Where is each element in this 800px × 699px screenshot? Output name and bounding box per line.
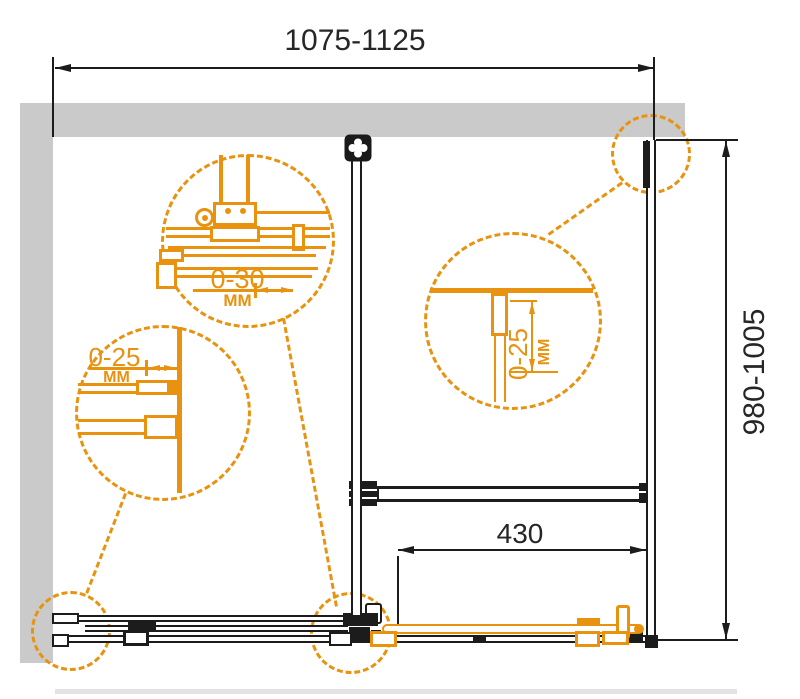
door-carriage-left bbox=[370, 631, 397, 647]
det1-carriage-top bbox=[213, 202, 257, 226]
center-post-mount-cap bbox=[344, 134, 372, 162]
right-post-wall-profile bbox=[643, 141, 650, 188]
right-post bbox=[646, 140, 656, 646]
dim-top-arrow-left bbox=[55, 64, 71, 72]
rail2-block bbox=[128, 621, 156, 630]
dim-right-line bbox=[725, 141, 727, 639]
det1-glass-edge-left bbox=[219, 155, 223, 207]
dim-right-arrow-down bbox=[722, 623, 730, 639]
det1-roller-axle bbox=[202, 215, 208, 221]
rail1-wall-bracket bbox=[52, 613, 79, 624]
det2-bar1-line2 bbox=[78, 391, 140, 394]
door-top-tab bbox=[577, 618, 600, 626]
door-carriage-right bbox=[602, 631, 629, 645]
det1-glass-edge-right bbox=[246, 155, 250, 207]
det2-wall-profile-bar bbox=[177, 327, 182, 493]
dim-right-arrow-up bbox=[722, 141, 730, 157]
det2-bar2-block bbox=[144, 415, 178, 439]
callout-connector-left bbox=[85, 493, 127, 594]
det1-dim-arrow-right bbox=[281, 287, 293, 293]
det2-bar1-insert bbox=[167, 382, 177, 393]
det1-unit-label: MM bbox=[205, 291, 270, 311]
center-post bbox=[351, 158, 362, 615]
dim-430-ext-left bbox=[397, 556, 399, 626]
dim-top-ext-left bbox=[52, 57, 54, 137]
det1-rail-a bbox=[253, 211, 330, 214]
right-post-foot bbox=[645, 635, 658, 648]
dim-430-label: 430 bbox=[460, 518, 580, 550]
door-carriage-mid bbox=[575, 631, 600, 647]
det2-bar2-line1 bbox=[78, 419, 148, 422]
det1-carriage-bottom bbox=[210, 226, 260, 242]
rail3-clip bbox=[473, 635, 486, 643]
dim-430-arrow-left bbox=[398, 546, 414, 554]
center-mech-foot bbox=[329, 632, 352, 646]
rail1-line bbox=[79, 615, 346, 622]
center-mech-carriage bbox=[349, 627, 370, 643]
det1-screw-dot-2 bbox=[240, 208, 246, 214]
callout-connector-roller bbox=[282, 318, 338, 607]
mount-cap-flower-icon bbox=[344, 134, 372, 162]
dim-top-line bbox=[55, 67, 654, 69]
det2-bar2-line2 bbox=[78, 432, 148, 435]
callout-connector-right bbox=[548, 182, 623, 236]
det2-unit-label: MM bbox=[84, 369, 149, 387]
stabilizer-bar bbox=[376, 486, 642, 502]
det3-unit-label: MM bbox=[536, 320, 556, 384]
wall-left bbox=[20, 103, 53, 663]
det3-value-label: 0-25 bbox=[503, 309, 531, 399]
dim-top-label: 1075-1125 bbox=[205, 24, 505, 58]
det1-rail-c1 bbox=[168, 246, 326, 249]
dim-right-ref-bottom bbox=[656, 639, 738, 641]
dim-right-label: 980-1005 bbox=[738, 292, 768, 452]
det1-left-clip-1 bbox=[159, 249, 184, 262]
dim-top-arrow-right bbox=[638, 64, 654, 72]
floor-shadow bbox=[55, 689, 737, 694]
dim-430-arrow-right bbox=[630, 546, 646, 554]
wall-top bbox=[20, 103, 685, 137]
technical-drawing-stage: 1075-1125 980-1005 430 bbox=[0, 0, 800, 699]
door-rail-end-cap bbox=[634, 624, 644, 634]
rail3-wall-bracket bbox=[52, 634, 69, 647]
det1-rail-c2 bbox=[168, 254, 316, 257]
det1-left-clip-2 bbox=[156, 262, 177, 289]
det1-screw-dot-1 bbox=[225, 208, 231, 214]
det2-dim-arrow-right bbox=[164, 365, 176, 371]
rail3-block bbox=[123, 630, 149, 646]
det3-ceiling-bar bbox=[430, 288, 593, 293]
